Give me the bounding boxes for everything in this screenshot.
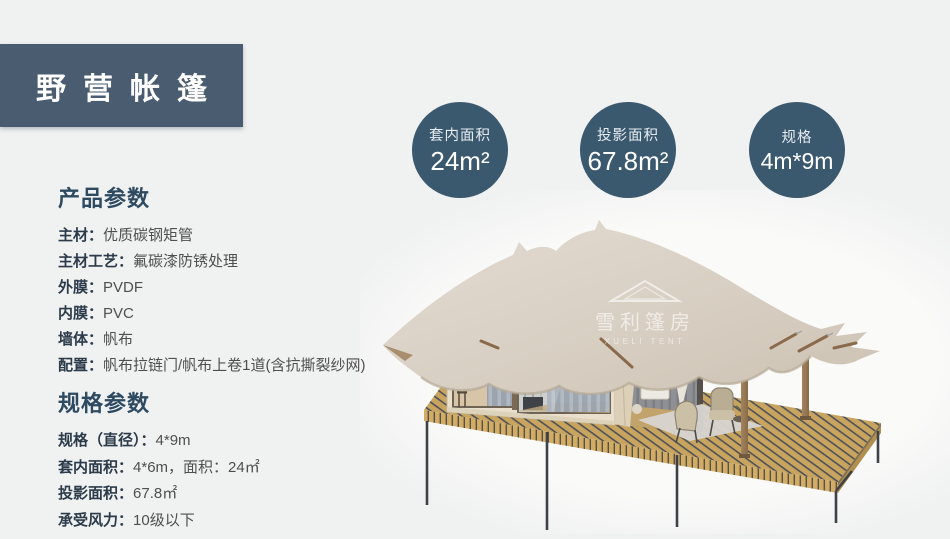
param-label: 主材： bbox=[58, 227, 103, 244]
param-value: 4*9m bbox=[156, 432, 191, 449]
param-label: 墙体： bbox=[58, 331, 103, 348]
param-value: 67.8㎡ bbox=[133, 485, 177, 502]
stat-value: 67.8m² bbox=[588, 146, 669, 177]
param-row: 套内面积：4*6m，面积：24㎡ bbox=[58, 455, 398, 482]
param-label: 主材工艺： bbox=[58, 253, 133, 270]
param-label: 承受风力： bbox=[58, 512, 133, 529]
watermark-en: XUELI TENT bbox=[604, 337, 685, 346]
param-label: 配置： bbox=[58, 357, 103, 374]
param-value: 4*6m，面积：24㎡ bbox=[133, 459, 260, 476]
param-label: 套内面积： bbox=[58, 459, 133, 476]
tent-render: 雪利篷房 XUELI TENT bbox=[375, 205, 950, 534]
param-row: 配置：帆布拉链门/帆布上卷1道(含抗撕裂纱网) bbox=[58, 353, 398, 379]
stat-value: 24m² bbox=[430, 146, 489, 177]
param-label: 内膜： bbox=[58, 305, 103, 322]
stat-label: 套内面积 bbox=[429, 124, 491, 145]
spec-params-section: 规格参数 规格（直径）：4*9m 套内面积：4*6m，面积：24㎡ 投影面积：6… bbox=[58, 386, 398, 534]
param-row: 主材工艺：氟碳漆防锈处理 bbox=[58, 249, 398, 275]
param-value: 帆布 bbox=[103, 331, 133, 348]
param-label: 外膜： bbox=[58, 279, 103, 296]
param-value: 优质碳钢矩管 bbox=[103, 227, 193, 244]
param-label: 投影面积： bbox=[58, 485, 133, 502]
watermark-cn: 雪利篷房 bbox=[595, 311, 695, 334]
stat-circle-size: 规格 4m*9m bbox=[749, 102, 845, 198]
page-title: 野营帐篷 bbox=[19, 64, 224, 108]
param-row: 承受风力：10级以下 bbox=[58, 508, 398, 535]
param-value: PVC bbox=[103, 305, 134, 322]
param-row: 投影面积：67.8㎡ bbox=[58, 481, 398, 508]
param-value: 10级以下 bbox=[133, 512, 195, 529]
param-row: 规格（直径）：4*9m bbox=[58, 428, 398, 455]
stat-circle-projection-area: 投影面积 67.8m² bbox=[580, 102, 676, 198]
stat-label: 投影面积 bbox=[597, 124, 659, 145]
param-label: 规格（直径）： bbox=[58, 432, 156, 449]
page-title-box: 野营帐篷 bbox=[0, 44, 243, 127]
stat-value: 4m*9m bbox=[761, 148, 834, 175]
spec-params-heading: 规格参数 bbox=[58, 386, 398, 418]
param-row: 内膜：PVC bbox=[58, 301, 398, 327]
param-row: 外膜：PVDF bbox=[58, 275, 398, 301]
product-params-section: 产品参数 主材：优质碳钢矩管 主材工艺：氟碳漆防锈处理 外膜：PVDF 内膜：P… bbox=[58, 181, 398, 379]
param-value: PVDF bbox=[103, 279, 143, 296]
stat-circle-inner-area: 套内面积 24m² bbox=[412, 102, 508, 198]
param-value: 氟碳漆防锈处理 bbox=[133, 253, 238, 270]
param-row: 墙体：帆布 bbox=[58, 327, 398, 353]
stat-label: 规格 bbox=[782, 126, 813, 147]
floor-cushion bbox=[632, 404, 642, 414]
param-row: 主材：优质碳钢矩管 bbox=[58, 223, 398, 249]
param-value: 帆布拉链门/帆布上卷1道(含抗撕裂纱网) bbox=[103, 357, 366, 374]
product-params-heading: 产品参数 bbox=[58, 181, 398, 213]
